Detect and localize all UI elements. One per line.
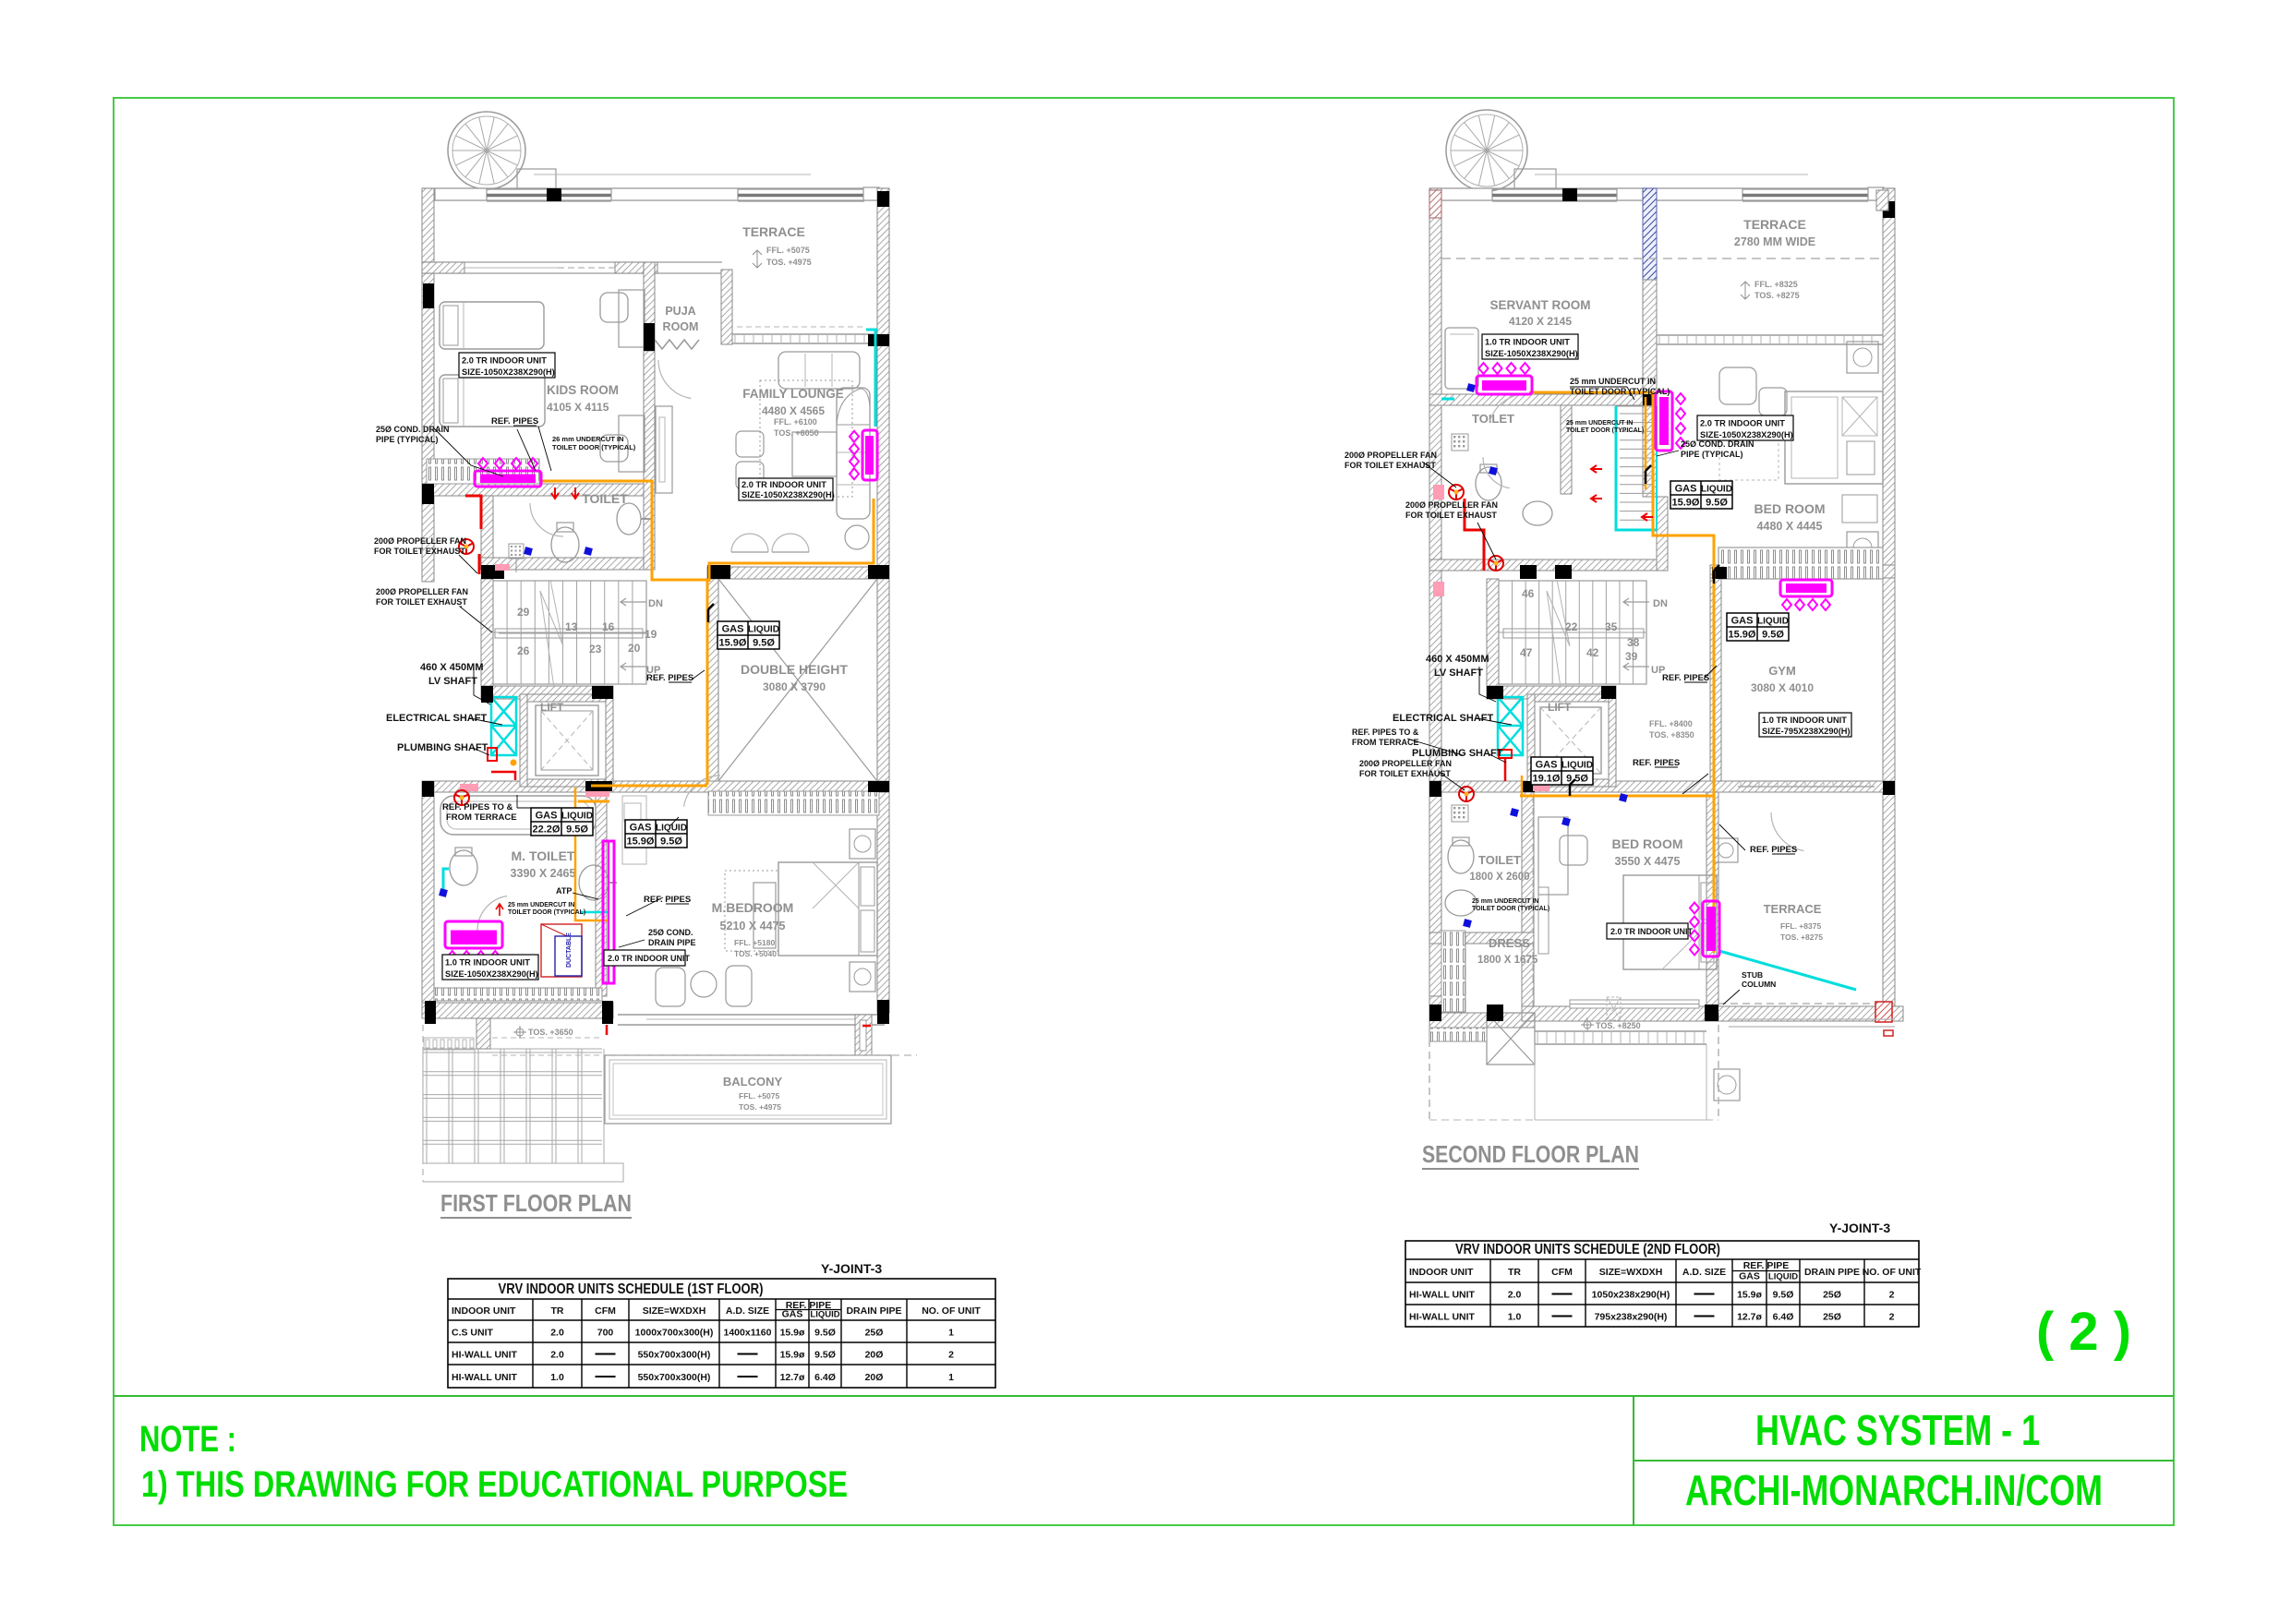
svg-text:6.4Ø: 6.4Ø xyxy=(1773,1312,1794,1323)
svg-text:HI-WALL UNIT: HI-WALL UNIT xyxy=(452,1372,518,1383)
svg-text:1800 X 1675: 1800 X 1675 xyxy=(1477,955,1538,966)
svg-text:SIZE-1050X238X290(H): SIZE-1050X238X290(H) xyxy=(742,490,835,499)
svg-text:9.5Ø: 9.5Ø xyxy=(1762,630,1784,641)
svg-text:9.5Ø: 9.5Ø xyxy=(814,1328,836,1339)
svg-text:A.D. SIZE: A.D. SIZE xyxy=(1682,1267,1726,1278)
svg-text:20: 20 xyxy=(628,642,641,655)
svg-text:1.0 TR INDOOR UNIT: 1.0 TR INDOOR UNIT xyxy=(1485,338,1570,347)
svg-text:HVAC SYSTEM - 1: HVAC SYSTEM - 1 xyxy=(1755,1406,2040,1454)
svg-text:15.9Ø: 15.9Ø xyxy=(719,638,747,649)
svg-text:1000x700x300(H): 1000x700x300(H) xyxy=(635,1328,714,1339)
svg-text:12.7ø: 12.7ø xyxy=(1737,1312,1762,1323)
svg-text:2: 2 xyxy=(1889,1290,1895,1301)
svg-text:DRAIN PIPE: DRAIN PIPE xyxy=(648,938,696,947)
svg-text:CFM: CFM xyxy=(595,1305,616,1317)
svg-text:NO. OF UNIT: NO. OF UNIT xyxy=(922,1305,981,1317)
svg-text:GAS: GAS xyxy=(782,1309,803,1320)
svg-text:SIZE=WXDXH: SIZE=WXDXH xyxy=(1599,1267,1663,1278)
svg-text:PIPE (TYPICAL): PIPE (TYPICAL) xyxy=(1681,450,1743,459)
svg-text:ROOM: ROOM xyxy=(663,320,699,333)
svg-text:TOILET DOOR (TYPICAL): TOILET DOOR (TYPICAL) xyxy=(1570,387,1670,396)
svg-text:( 2 ): ( 2 ) xyxy=(2036,1302,2131,1362)
svg-text:9.5Ø: 9.5Ø xyxy=(660,836,682,848)
svg-text:M.BEDROOM: M.BEDROOM xyxy=(712,900,794,915)
svg-text:FFL. +5180: FFL. +5180 xyxy=(734,938,775,947)
svg-text:REF. PIPES: REF. PIPES xyxy=(646,673,693,683)
svg-text:TOS. +8250: TOS. +8250 xyxy=(1596,1021,1641,1030)
svg-text:LIQUID: LIQUID xyxy=(1768,1272,1798,1282)
svg-text:550x700x300(H): 550x700x300(H) xyxy=(638,1350,711,1361)
svg-text:KIDS ROOM: KIDS ROOM xyxy=(547,383,619,397)
svg-text:16: 16 xyxy=(602,620,615,633)
svg-text:LIQUID: LIQUID xyxy=(1701,485,1732,495)
svg-text:COLUMN: COLUMN xyxy=(1742,980,1776,989)
svg-text:SECOND FLOOR PLAN: SECOND FLOOR PLAN xyxy=(1422,1140,1639,1168)
svg-text:4480 X 4445: 4480 X 4445 xyxy=(1757,520,1823,533)
svg-text:LIQUID: LIQUID xyxy=(1757,617,1789,627)
svg-text:46: 46 xyxy=(1522,587,1535,600)
svg-text:19.1Ø: 19.1Ø xyxy=(1533,774,1561,785)
svg-text:2.0 TR INDOOR UNIT: 2.0 TR INDOOR UNIT xyxy=(742,480,826,489)
svg-text:Y-JOINT-3: Y-JOINT-3 xyxy=(821,1261,882,1276)
svg-text:TERRACE: TERRACE xyxy=(1743,217,1806,232)
svg-text:23: 23 xyxy=(589,643,602,656)
svg-text:FFL. +8325: FFL. +8325 xyxy=(1754,280,1798,289)
svg-text:FFL. +8375: FFL. +8375 xyxy=(1780,921,1821,931)
svg-text:TOILET DOOR (TYPICAL): TOILET DOOR (TYPICAL) xyxy=(1472,906,1549,912)
svg-text:NO. OF UNIT: NO. OF UNIT xyxy=(1863,1267,1922,1278)
svg-text:VRV INDOOR UNITS SCHEDULE (1S: VRV INDOOR UNITS SCHEDULE (1ST FLOOR) xyxy=(499,1281,764,1297)
svg-text:REF. PIPES TO &: REF. PIPES TO & xyxy=(442,802,513,812)
svg-text:LV SHAFT: LV SHAFT xyxy=(428,676,477,687)
svg-text:LIQUID: LIQUID xyxy=(1561,761,1593,771)
svg-text:GAS: GAS xyxy=(1536,760,1558,771)
svg-text:25 mm UNDERCUT IN: 25 mm UNDERCUT IN xyxy=(1570,377,1656,386)
svg-text:TOS. +8350: TOS. +8350 xyxy=(1649,730,1694,740)
svg-text:1.0 TR INDOOR UNIT: 1.0 TR INDOOR UNIT xyxy=(445,958,530,968)
svg-text:15.9ø: 15.9ø xyxy=(780,1350,805,1361)
svg-text:2.0 TR INDOOR UNIT: 2.0 TR INDOOR UNIT xyxy=(1610,927,1694,936)
svg-text:FFL. +5075: FFL. +5075 xyxy=(739,1091,779,1101)
svg-text:REF. PIPES: REF. PIPES xyxy=(1750,845,1797,855)
svg-text:FOR TOILET EXHAUST: FOR TOILET EXHAUST xyxy=(1405,511,1497,520)
svg-text:DN: DN xyxy=(1653,598,1668,609)
svg-text:22: 22 xyxy=(1565,620,1578,633)
svg-text:M. TOILET: M. TOILET xyxy=(512,848,575,863)
svg-text:9.5Ø: 9.5Ø xyxy=(1773,1290,1794,1301)
svg-text:LV SHAFT: LV SHAFT xyxy=(1434,668,1483,679)
svg-text:TOILET DOOR (TYPICAL): TOILET DOOR (TYPICAL) xyxy=(1566,427,1644,434)
svg-text:25Ø: 25Ø xyxy=(1823,1312,1841,1323)
svg-text:3390 X 2465: 3390 X 2465 xyxy=(511,867,576,880)
svg-text:2.0: 2.0 xyxy=(550,1328,564,1339)
svg-text:SIZE=WXDXH: SIZE=WXDXH xyxy=(643,1305,706,1317)
svg-text:GYM: GYM xyxy=(1768,664,1796,678)
svg-text:TERRACE: TERRACE xyxy=(742,224,805,239)
svg-text:47: 47 xyxy=(1520,646,1533,659)
svg-text:REF. PIPES: REF. PIPES xyxy=(1662,673,1709,683)
svg-text:DRESS: DRESS xyxy=(1489,936,1530,950)
svg-text:2.0 TR INDOOR UNIT: 2.0 TR INDOOR UNIT xyxy=(1700,419,1785,428)
svg-text:2.0: 2.0 xyxy=(1508,1290,1522,1301)
svg-text:35: 35 xyxy=(1605,620,1618,633)
svg-text:LIQUID: LIQUID xyxy=(561,812,593,822)
svg-text:SIZE-1050X238X290(H): SIZE-1050X238X290(H) xyxy=(1700,430,1793,439)
svg-text:15.9ø: 15.9ø xyxy=(1737,1290,1762,1301)
svg-text:INDOOR UNIT: INDOOR UNIT xyxy=(1409,1267,1474,1278)
svg-text:38: 38 xyxy=(1627,636,1640,649)
svg-text:TOILET DOOR (TYPICAL): TOILET DOOR (TYPICAL) xyxy=(508,909,585,916)
svg-text:3550 X 4475: 3550 X 4475 xyxy=(1615,855,1681,868)
svg-text:TOILET: TOILET xyxy=(582,491,628,506)
svg-text:HI-WALL UNIT: HI-WALL UNIT xyxy=(1409,1312,1476,1323)
svg-text:795x238x290(H): 795x238x290(H) xyxy=(1595,1312,1668,1323)
svg-text:1.0: 1.0 xyxy=(550,1372,564,1383)
svg-text:LIQUID: LIQUID xyxy=(748,625,779,635)
svg-text:9.5Ø: 9.5Ø xyxy=(753,638,775,649)
svg-text:26: 26 xyxy=(517,644,530,657)
svg-text:HI-WALL UNIT: HI-WALL UNIT xyxy=(452,1350,518,1361)
svg-text:25 mm UNDERCUT IN: 25 mm UNDERCUT IN xyxy=(1472,898,1538,905)
svg-text:TOS. +8275: TOS. +8275 xyxy=(1780,932,1823,942)
svg-text:BALCONY: BALCONY xyxy=(723,1075,783,1089)
svg-text:TOS. +6050: TOS. +6050 xyxy=(774,428,819,438)
svg-text:DUCTABLE: DUCTABLE xyxy=(566,932,573,968)
svg-text:FFL. +6100: FFL. +6100 xyxy=(774,417,817,427)
svg-text:REF. PIPES: REF. PIPES xyxy=(1633,758,1680,768)
svg-text:REF. PIPES: REF. PIPES xyxy=(491,416,538,427)
svg-text:A.D. SIZE: A.D. SIZE xyxy=(726,1305,769,1317)
svg-text:VRV INDOOR UNITS SCHEDULE (2N: VRV INDOOR UNITS SCHEDULE (2ND FLOOR) xyxy=(1455,1242,1720,1257)
svg-text:25 mm UNDERCUT IN: 25 mm UNDERCUT IN xyxy=(1566,420,1633,427)
svg-text:4480 X 4565: 4480 X 4565 xyxy=(762,404,825,417)
svg-text:C.S UNIT: C.S UNIT xyxy=(452,1328,494,1339)
svg-text:4120 X 2145: 4120 X 2145 xyxy=(1509,315,1572,328)
svg-text:9.5Ø: 9.5Ø xyxy=(1706,498,1728,509)
svg-text:SIZE-1050X238X290(H): SIZE-1050X238X290(H) xyxy=(445,969,538,979)
svg-text:PIPE (TYPICAL): PIPE (TYPICAL) xyxy=(376,435,439,444)
svg-text:GAS: GAS xyxy=(630,823,652,834)
svg-text:20Ø: 20Ø xyxy=(865,1372,884,1383)
svg-text:700: 700 xyxy=(597,1328,614,1339)
svg-text:460 X 450MM: 460 X 450MM xyxy=(1426,654,1489,665)
svg-text:20Ø: 20Ø xyxy=(865,1350,884,1361)
svg-text:GAS: GAS xyxy=(1731,616,1754,627)
svg-text:22.2Ø: 22.2Ø xyxy=(533,824,561,836)
svg-text:GAS: GAS xyxy=(536,811,558,822)
svg-text:2: 2 xyxy=(1889,1312,1895,1323)
svg-text:25Ø: 25Ø xyxy=(865,1328,884,1339)
svg-text:1400x1160: 1400x1160 xyxy=(724,1328,772,1339)
svg-text:12.7ø: 12.7ø xyxy=(780,1372,805,1383)
svg-text:1800 X 2600: 1800 X 2600 xyxy=(1469,872,1529,883)
svg-text:25Ø COND.: 25Ø COND. xyxy=(648,928,693,937)
svg-text:TERRACE: TERRACE xyxy=(1764,902,1822,916)
svg-text:25Ø COND. DRAIN: 25Ø COND. DRAIN xyxy=(1681,439,1754,449)
svg-text:42: 42 xyxy=(1586,646,1599,659)
svg-text:200Ø PROPELLER FAN: 200Ø PROPELLER FAN xyxy=(1344,451,1437,460)
svg-text:3080 X 3790: 3080 X 3790 xyxy=(763,680,826,693)
svg-text:13: 13 xyxy=(565,620,578,633)
svg-text:FIRST FLOOR PLAN: FIRST FLOOR PLAN xyxy=(440,1189,632,1217)
svg-text:TOS. +4975: TOS. +4975 xyxy=(739,1102,781,1112)
svg-text:ATP: ATP xyxy=(556,886,572,896)
svg-text:TOS. +3650: TOS. +3650 xyxy=(528,1028,573,1037)
svg-text:CFM: CFM xyxy=(1551,1267,1573,1278)
svg-text:DRAIN PIPE: DRAIN PIPE xyxy=(1804,1267,1860,1278)
svg-text:REF. PIPES TO &: REF. PIPES TO & xyxy=(1352,728,1419,737)
svg-text:LIQUID: LIQUID xyxy=(810,1310,839,1320)
svg-text:26 mm UNDERCUT IN: 26 mm UNDERCUT IN xyxy=(552,435,624,443)
svg-text:NOTE :: NOTE : xyxy=(139,1419,236,1460)
svg-text:FFL. +5075: FFL. +5075 xyxy=(766,246,810,255)
svg-text:TR: TR xyxy=(1508,1267,1521,1278)
svg-text:25Ø: 25Ø xyxy=(1823,1290,1841,1301)
svg-text:1050x238x290(H): 1050x238x290(H) xyxy=(1592,1290,1670,1301)
svg-text:DRAIN PIPE: DRAIN PIPE xyxy=(846,1305,901,1317)
svg-text:15.9Ø: 15.9Ø xyxy=(627,836,655,848)
svg-text:LIFT: LIFT xyxy=(1548,701,1572,714)
svg-text:FOR TOILET EXHAUST: FOR TOILET EXHAUST xyxy=(374,547,465,556)
svg-text:GAS: GAS xyxy=(1739,1271,1760,1282)
svg-text:BED ROOM: BED ROOM xyxy=(1754,501,1826,516)
svg-text:DN: DN xyxy=(648,598,663,609)
svg-text:DOUBLE HEIGHT: DOUBLE HEIGHT xyxy=(741,662,848,677)
svg-text:ARCHI-MONARCH.IN/COM: ARCHI-MONARCH.IN/COM xyxy=(1685,1466,2103,1514)
svg-text:200Ø PROPELLER FAN: 200Ø PROPELLER FAN xyxy=(1405,500,1498,510)
svg-text:SIZE-1050X238X290(H): SIZE-1050X238X290(H) xyxy=(1485,349,1578,358)
svg-text:BED ROOM: BED ROOM xyxy=(1612,836,1683,851)
svg-text:1.0: 1.0 xyxy=(1508,1312,1522,1323)
svg-text:FROM TERRACE: FROM TERRACE xyxy=(446,812,517,823)
svg-text:3080 X 4010: 3080 X 4010 xyxy=(1751,681,1814,694)
svg-text:TOILET DOOR (TYPICAL): TOILET DOOR (TYPICAL) xyxy=(552,443,636,451)
svg-text:200Ø PROPELLER FAN: 200Ø PROPELLER FAN xyxy=(376,587,468,596)
svg-text:9.5Ø: 9.5Ø xyxy=(1566,774,1588,785)
svg-text:HI-WALL UNIT: HI-WALL UNIT xyxy=(1409,1290,1476,1301)
svg-text:2.0 TR INDOOR UNIT: 2.0 TR INDOOR UNIT xyxy=(462,356,547,366)
svg-text:FFL. +8400: FFL. +8400 xyxy=(1649,719,1693,728)
svg-text:TOS. +4975: TOS. +4975 xyxy=(766,258,812,267)
svg-text:15.9Ø: 15.9Ø xyxy=(1729,630,1756,641)
svg-text:LIFT: LIFT xyxy=(540,701,564,714)
svg-text:29: 29 xyxy=(517,606,530,619)
svg-text:200Ø PROPELLER FAN: 200Ø PROPELLER FAN xyxy=(1359,759,1452,768)
svg-text:FOR TOILET EXHAUST: FOR TOILET EXHAUST xyxy=(1359,769,1451,778)
svg-text:INDOOR UNIT: INDOOR UNIT xyxy=(452,1305,516,1317)
svg-text:SIZE-795X238X290(H): SIZE-795X238X290(H) xyxy=(1762,727,1851,736)
svg-text:PUJA: PUJA xyxy=(665,305,695,318)
svg-text:39: 39 xyxy=(1625,650,1638,663)
svg-text:1.0 TR INDOOR UNIT: 1.0 TR INDOOR UNIT xyxy=(1762,716,1847,725)
svg-text:200Ø PROPELLER FAN: 200Ø PROPELLER FAN xyxy=(374,536,466,546)
svg-text:1) THIS DRAWING FOR EDUCATIONA: 1) THIS DRAWING FOR EDUCATIONAL PURPOSE xyxy=(141,1464,848,1505)
svg-text:25 mm UNDERCUT IN: 25 mm UNDERCUT IN xyxy=(508,902,574,908)
svg-text:2.0 TR INDOOR UNIT: 2.0 TR INDOOR UNIT xyxy=(608,954,691,963)
svg-text:15.9Ø: 15.9Ø xyxy=(1672,498,1700,509)
svg-text:SERVANT ROOM: SERVANT ROOM xyxy=(1489,298,1590,312)
svg-text:Y-JOINT-3: Y-JOINT-3 xyxy=(1829,1221,1890,1235)
svg-text:9.5Ø: 9.5Ø xyxy=(814,1350,836,1361)
svg-text:4105 X 4115: 4105 X 4115 xyxy=(547,401,609,414)
svg-text:9.5Ø: 9.5Ø xyxy=(566,824,588,836)
svg-text:2: 2 xyxy=(948,1350,954,1361)
svg-text:GAS: GAS xyxy=(722,624,744,635)
svg-text:1: 1 xyxy=(948,1372,954,1383)
svg-text:19: 19 xyxy=(645,628,657,641)
svg-text:GAS: GAS xyxy=(1675,484,1697,495)
svg-text:STUB: STUB xyxy=(1742,970,1763,980)
svg-text:TOS. +8275: TOS. +8275 xyxy=(1754,291,1800,300)
svg-text:TOILET: TOILET xyxy=(1478,853,1521,867)
svg-text:550x700x300(H): 550x700x300(H) xyxy=(638,1372,711,1383)
svg-text:TR: TR xyxy=(551,1305,564,1317)
svg-text:PLUMBING SHAFT: PLUMBING SHAFT xyxy=(397,742,488,753)
svg-text:REF. PIPE: REF. PIPE xyxy=(1743,1260,1790,1271)
svg-text:SIZE-1050X238X290(H): SIZE-1050X238X290(H) xyxy=(462,367,555,377)
svg-text:2.0: 2.0 xyxy=(550,1350,564,1361)
svg-text:2780 MM WIDE: 2780 MM WIDE xyxy=(1734,235,1815,248)
svg-text:15.9ø: 15.9ø xyxy=(780,1328,805,1339)
svg-text:FOR TOILET EXHAUST: FOR TOILET EXHAUST xyxy=(376,597,467,607)
svg-text:6.4Ø: 6.4Ø xyxy=(814,1372,836,1383)
svg-text:1: 1 xyxy=(948,1328,954,1339)
